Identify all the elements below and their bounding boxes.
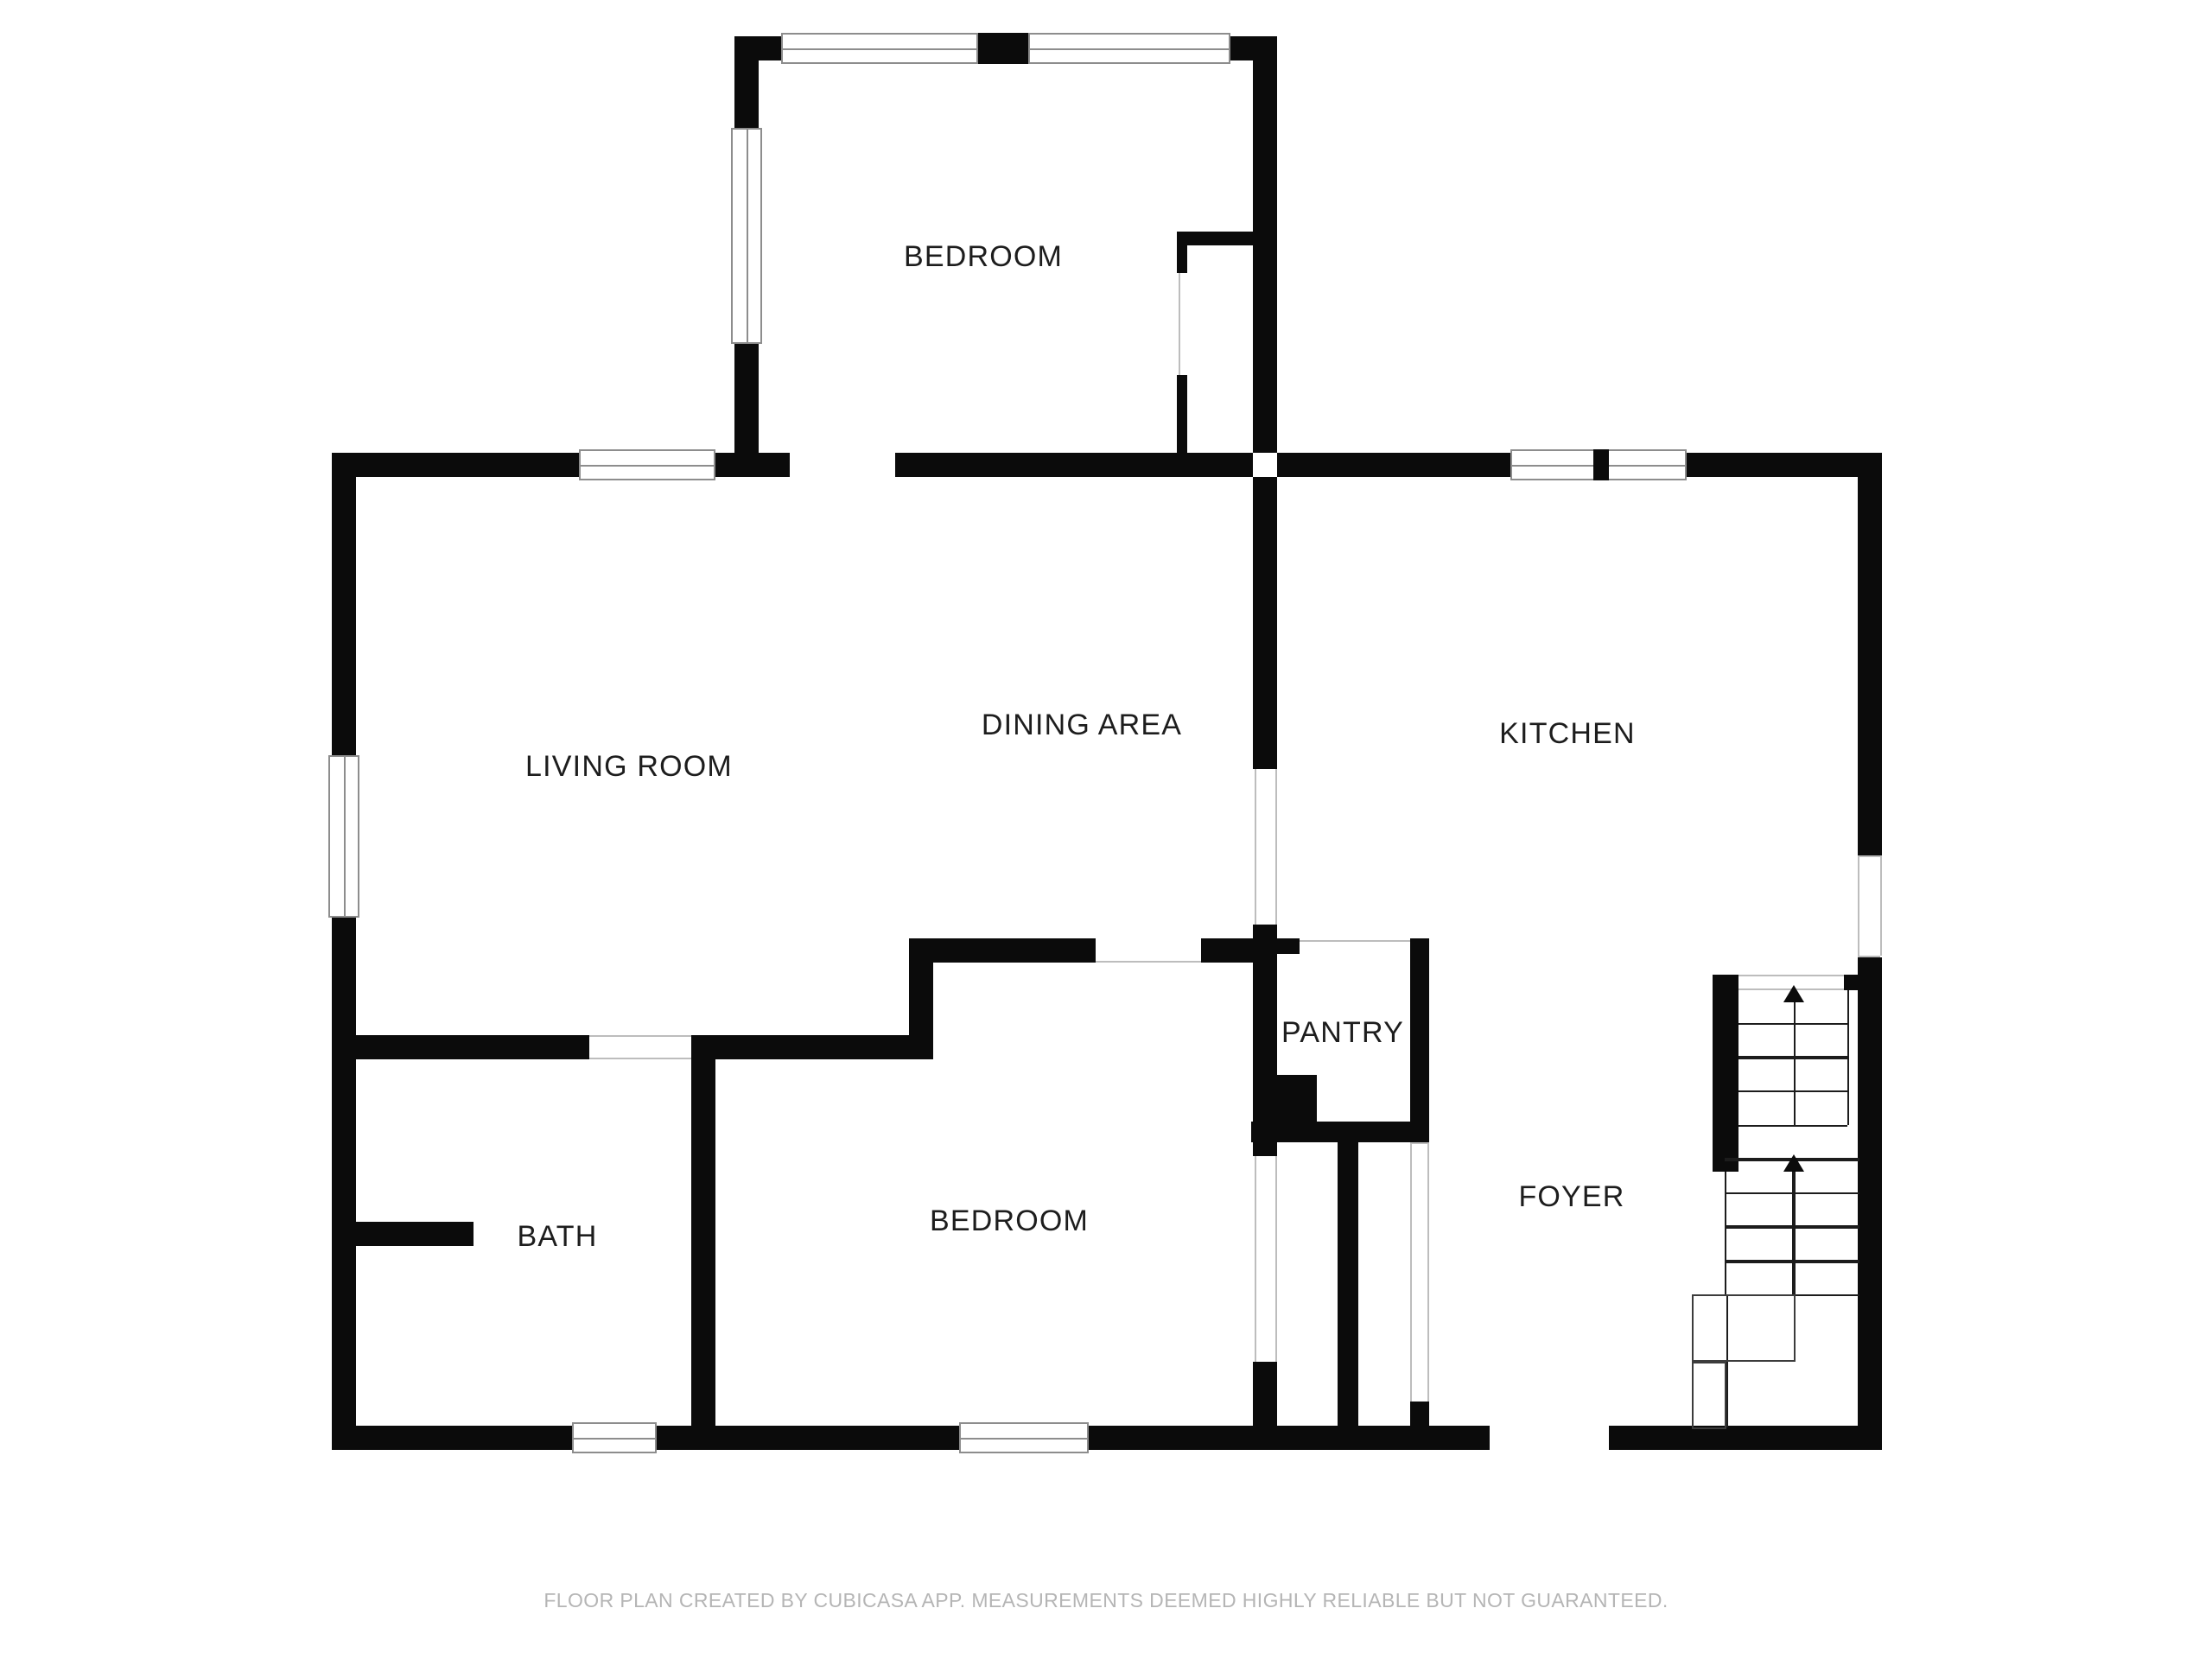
wall xyxy=(715,453,790,477)
window-pane-line xyxy=(746,130,747,342)
door-opening-line xyxy=(1738,975,1843,976)
door-opening-line xyxy=(1274,769,1276,925)
floor-plan-canvas: FLOOR PLAN CREATED BY CUBICASA APP. MEAS… xyxy=(0,0,2212,1659)
door-opening-line xyxy=(1254,1155,1255,1361)
door-opening-line xyxy=(1300,939,1410,941)
window xyxy=(780,33,977,64)
wall xyxy=(909,938,1095,963)
window-pane-line xyxy=(961,1438,1087,1440)
stair-tread-line xyxy=(1792,1168,1795,1294)
window xyxy=(572,1422,657,1453)
wall xyxy=(1857,453,1881,855)
wall xyxy=(1713,975,1738,1171)
wall xyxy=(1089,1426,1489,1450)
room-label-foyer: FOYER xyxy=(1518,1180,1624,1215)
door-opening-line xyxy=(1178,272,1179,374)
stair-direction-arrow-icon xyxy=(1783,1154,1803,1172)
wall xyxy=(1253,477,1277,769)
window-pane-line xyxy=(1030,48,1228,50)
wall xyxy=(331,453,579,477)
wall xyxy=(734,36,758,128)
stair-tread-line xyxy=(1724,1171,1726,1294)
wall xyxy=(355,1035,589,1059)
window-pane-line xyxy=(581,465,714,467)
wall xyxy=(657,1426,959,1450)
window-pane-line xyxy=(343,756,345,916)
wall xyxy=(1410,1402,1429,1427)
room-label-bedroom-top: BEDROOM xyxy=(904,239,1063,274)
door-opening-line xyxy=(589,1058,691,1059)
window xyxy=(1028,33,1230,64)
room-label-pantry: PANTRY xyxy=(1281,1016,1404,1051)
door-opening-line xyxy=(589,1035,691,1037)
wall xyxy=(1608,1426,1881,1450)
door-opening-line xyxy=(1857,855,1880,856)
wall xyxy=(331,453,355,754)
wall xyxy=(1266,1074,1316,1122)
wall xyxy=(1253,36,1277,453)
stair-tread-line xyxy=(1847,989,1849,1124)
wall xyxy=(331,1426,572,1450)
room-label-kitchen: KITCHEN xyxy=(1499,716,1636,751)
door-opening-line xyxy=(1410,1142,1412,1402)
door-opening-line xyxy=(1879,855,1881,956)
wall xyxy=(977,33,1028,64)
door-opening-line xyxy=(1254,769,1255,925)
stair-tread-line xyxy=(1793,999,1796,1125)
window xyxy=(327,754,359,918)
stair-understep-box xyxy=(1691,1361,1726,1428)
stair-understep-box xyxy=(1691,1294,1795,1361)
wall xyxy=(331,918,355,1450)
wall xyxy=(691,1035,715,1427)
wall xyxy=(1843,975,1860,989)
wall xyxy=(734,344,758,453)
door-opening-line xyxy=(1095,961,1200,963)
wall xyxy=(1277,453,1510,477)
wall xyxy=(1200,938,1253,963)
wall xyxy=(1338,1122,1358,1427)
door-opening-line xyxy=(1427,1142,1429,1402)
wall xyxy=(1857,957,1881,1450)
stair-direction-arrow-icon xyxy=(1783,985,1804,1002)
window xyxy=(959,1422,1089,1453)
door-opening-line xyxy=(1857,855,1859,956)
window-pane-line xyxy=(574,1438,655,1440)
room-label-bedroom-bottom: BEDROOM xyxy=(930,1205,1089,1239)
wall xyxy=(1593,449,1609,480)
door-opening-line xyxy=(1410,1142,1427,1144)
door-opening-line xyxy=(1857,955,1880,957)
room-label-bath: BATH xyxy=(518,1220,598,1255)
wall xyxy=(1686,453,1881,477)
wall xyxy=(1177,231,1253,245)
wall xyxy=(1410,938,1428,1142)
window-pane-line xyxy=(782,48,976,50)
door-opening-line xyxy=(1274,1155,1276,1361)
footer-disclaimer: FLOOR PLAN CREATED BY CUBICASA APP. MEAS… xyxy=(543,1592,1668,1612)
floorplan-page: FLOOR PLAN CREATED BY CUBICASA APP. MEAS… xyxy=(0,0,2212,1659)
wall xyxy=(355,1221,473,1245)
room-label-living-room: LIVING ROOM xyxy=(525,749,733,784)
wall xyxy=(1177,374,1187,453)
wall xyxy=(1277,938,1300,954)
wall xyxy=(715,1035,909,1059)
wall xyxy=(1253,1361,1277,1427)
window xyxy=(730,128,761,344)
room-label-dining-area: DINING AREA xyxy=(982,709,1182,743)
wall xyxy=(895,453,1253,477)
window xyxy=(579,449,715,480)
wall xyxy=(1177,245,1187,272)
